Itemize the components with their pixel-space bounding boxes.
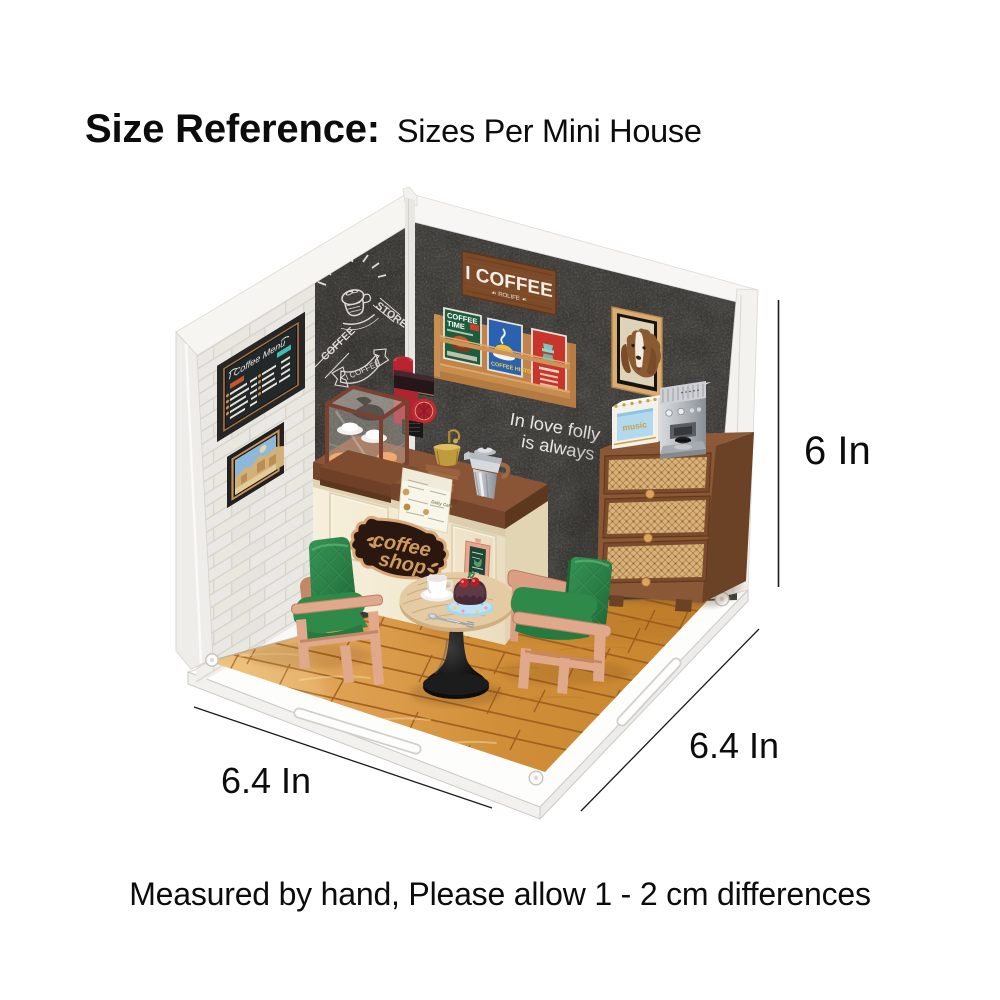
svg-text:6.4 In: 6.4 In [221,760,311,801]
svg-text:6.4 In: 6.4 In [689,725,779,766]
svg-text:Measured by hand, Please allow: Measured by hand, Please allow 1 - 2 cm … [129,876,871,912]
svg-text:6 In: 6 In [804,429,871,473]
